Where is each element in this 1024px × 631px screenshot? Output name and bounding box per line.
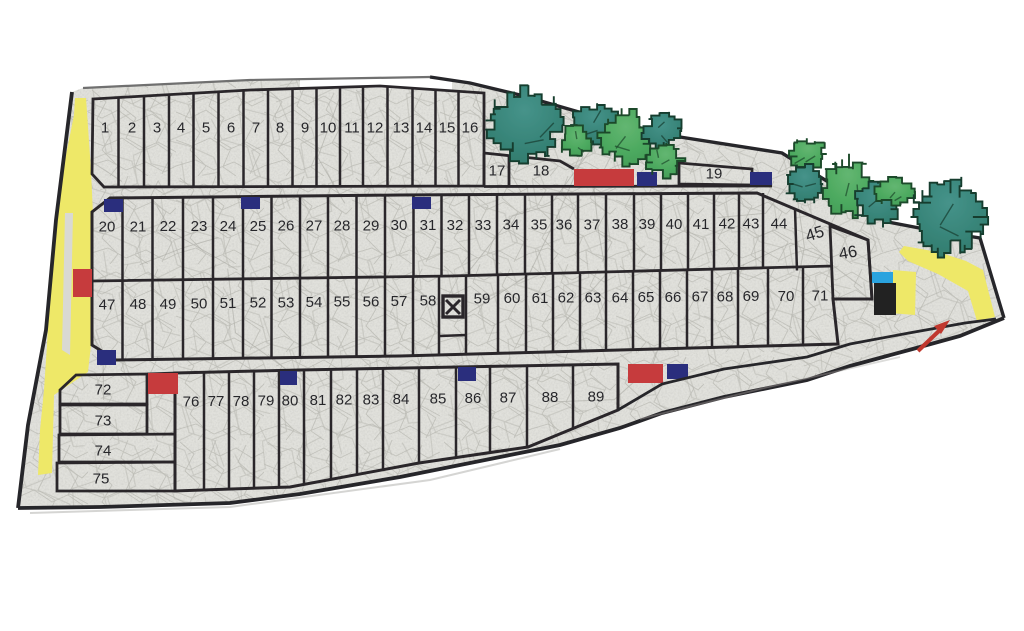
svg-text:12: 12	[367, 120, 384, 137]
svg-text:29: 29	[363, 217, 380, 234]
svg-text:9: 9	[301, 120, 309, 137]
svg-text:17: 17	[489, 163, 506, 180]
svg-text:34: 34	[503, 217, 520, 234]
svg-text:61: 61	[532, 290, 549, 307]
svg-text:47: 47	[99, 297, 116, 314]
svg-text:25: 25	[250, 218, 267, 235]
svg-text:46: 46	[837, 243, 858, 264]
svg-text:79: 79	[258, 393, 275, 410]
svg-text:51: 51	[220, 295, 237, 312]
svg-text:31: 31	[420, 217, 437, 234]
svg-text:63: 63	[585, 290, 602, 307]
svg-text:4: 4	[177, 120, 185, 137]
svg-text:32: 32	[447, 217, 464, 234]
svg-text:89: 89	[588, 389, 605, 406]
svg-text:41: 41	[693, 216, 710, 233]
svg-text:76: 76	[183, 394, 200, 411]
svg-text:15: 15	[439, 120, 456, 137]
svg-text:75: 75	[93, 471, 110, 488]
svg-text:72: 72	[95, 382, 112, 399]
svg-text:53: 53	[278, 294, 295, 311]
svg-text:39: 39	[639, 216, 656, 233]
svg-text:38: 38	[612, 216, 629, 233]
svg-text:49: 49	[160, 296, 177, 313]
svg-text:58: 58	[420, 293, 437, 310]
svg-text:26: 26	[278, 218, 295, 235]
svg-text:8: 8	[276, 120, 284, 137]
svg-text:60: 60	[504, 290, 521, 307]
svg-text:21: 21	[130, 218, 147, 235]
svg-text:55: 55	[334, 294, 351, 311]
svg-text:50: 50	[191, 295, 208, 312]
svg-text:77: 77	[208, 393, 225, 410]
svg-text:30: 30	[391, 217, 408, 234]
svg-text:62: 62	[558, 290, 575, 307]
svg-text:85: 85	[430, 391, 447, 408]
svg-text:68: 68	[717, 288, 734, 305]
svg-text:64: 64	[612, 289, 629, 306]
svg-text:5: 5	[202, 120, 210, 137]
svg-text:13: 13	[393, 120, 410, 137]
svg-text:80: 80	[282, 392, 299, 409]
svg-text:66: 66	[665, 289, 682, 306]
svg-text:59: 59	[474, 291, 491, 308]
svg-text:83: 83	[363, 391, 380, 408]
svg-text:10: 10	[320, 120, 337, 137]
svg-text:67: 67	[692, 289, 709, 306]
svg-text:78: 78	[233, 393, 250, 410]
svg-text:52: 52	[250, 295, 267, 312]
svg-text:74: 74	[95, 443, 112, 460]
svg-text:16: 16	[462, 120, 479, 137]
svg-text:28: 28	[334, 217, 351, 234]
svg-text:33: 33	[475, 217, 492, 234]
svg-text:19: 19	[706, 166, 723, 183]
svg-text:86: 86	[465, 390, 482, 407]
svg-text:88: 88	[542, 389, 559, 406]
svg-text:1: 1	[101, 120, 109, 137]
svg-text:71: 71	[812, 287, 829, 304]
svg-text:54: 54	[306, 294, 323, 311]
svg-text:70: 70	[778, 288, 795, 305]
svg-text:24: 24	[220, 218, 237, 235]
svg-text:65: 65	[638, 289, 655, 306]
svg-text:56: 56	[363, 293, 380, 310]
svg-text:11: 11	[344, 120, 360, 137]
svg-text:69: 69	[743, 288, 760, 305]
svg-text:57: 57	[391, 293, 408, 310]
svg-text:36: 36	[556, 216, 573, 233]
svg-text:42: 42	[719, 216, 736, 233]
svg-text:44: 44	[771, 215, 788, 232]
svg-text:23: 23	[191, 218, 208, 235]
svg-text:73: 73	[95, 413, 112, 430]
svg-text:82: 82	[336, 392, 353, 409]
svg-text:14: 14	[416, 120, 433, 137]
svg-text:84: 84	[393, 391, 410, 408]
svg-text:43: 43	[743, 216, 760, 233]
svg-text:37: 37	[584, 216, 601, 233]
svg-text:87: 87	[500, 390, 517, 407]
svg-text:2: 2	[128, 120, 136, 137]
svg-text:22: 22	[160, 218, 177, 235]
svg-text:48: 48	[130, 296, 147, 313]
svg-text:18: 18	[533, 163, 550, 180]
svg-text:3: 3	[153, 120, 161, 137]
svg-text:81: 81	[310, 392, 327, 409]
svg-text:40: 40	[666, 216, 683, 233]
svg-text:20: 20	[99, 219, 116, 236]
svg-text:35: 35	[531, 217, 548, 234]
svg-text:27: 27	[306, 218, 323, 235]
svg-text:7: 7	[252, 120, 260, 137]
svg-text:6: 6	[227, 120, 235, 137]
